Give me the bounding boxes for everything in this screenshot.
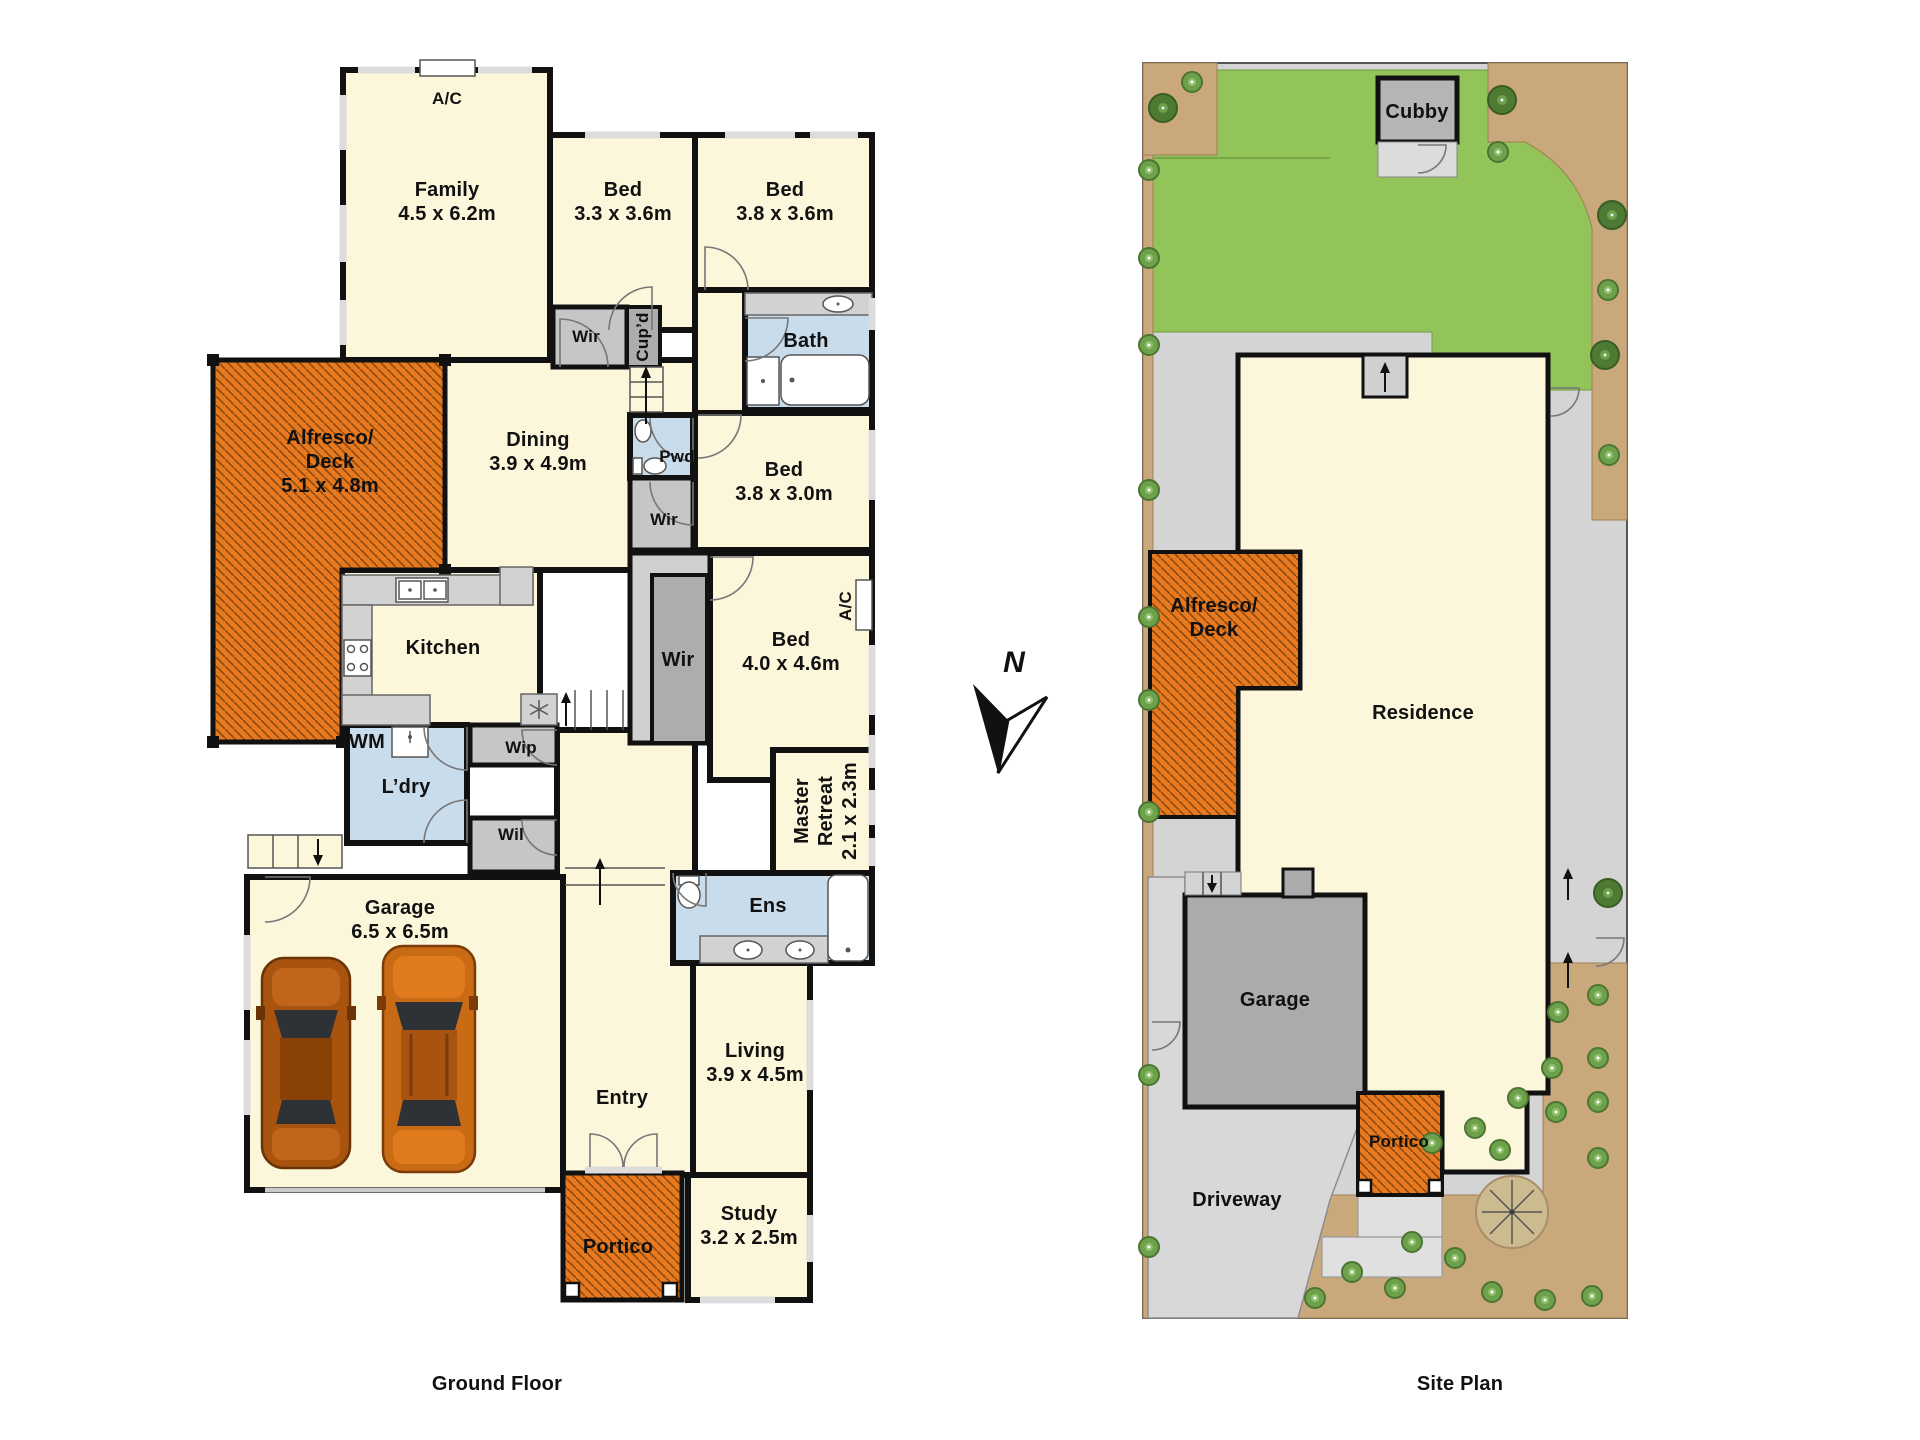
label-site-garage: Garage (1240, 988, 1310, 1012)
caption-ground-floor: Ground Floor (432, 1372, 562, 1396)
label-bed1: Bed3.3 x 3.6m (574, 178, 672, 226)
caption-site-plan: Site Plan (1417, 1372, 1503, 1396)
label-ens: Ens (749, 894, 786, 918)
label-dining: Dining3.9 x 4.9m (489, 428, 587, 476)
label-cupd: Cup’d (633, 312, 653, 361)
label-wm: WM (349, 730, 385, 754)
stove-icon (344, 640, 371, 676)
label-living: Living3.9 x 4.5m (706, 1039, 804, 1087)
label-bed4: Bed4.0 x 4.6m (742, 628, 840, 676)
laundry-fixtures (392, 727, 428, 757)
label-master-retreat: MasterRetreat2.1 x 2.3m (790, 762, 862, 860)
label-ac-bed4: A/C (836, 591, 856, 621)
portico-post (1358, 1180, 1371, 1193)
label-site-portico: Portico (1369, 1132, 1429, 1152)
label-entry: Entry (596, 1086, 648, 1110)
north-compass-icon (973, 684, 1047, 773)
plan-graphics (0, 0, 1920, 1440)
ac-unit-icon (420, 60, 475, 76)
label-bed2: Bed3.8 x 3.6m (736, 178, 834, 226)
portico-post (1429, 1180, 1442, 1193)
walkway (1358, 1195, 1442, 1237)
label-residence: Residence (1372, 701, 1474, 725)
label-alfresco: Alfresco/Deck5.1 x 4.8m (281, 426, 379, 498)
site-plan (1139, 63, 1627, 1318)
label-wir-master: Wir (662, 648, 695, 672)
site-garage-bump (1283, 869, 1313, 897)
label-wir-small: Wir (572, 327, 600, 347)
label-bed3: Bed3.8 x 3.0m (735, 458, 833, 506)
label-bath: Bath (783, 329, 828, 353)
label-driveway: Driveway (1192, 1188, 1281, 1212)
walkway (1322, 1237, 1442, 1277)
ground-floor-plan (207, 60, 872, 1300)
floorplan-canvas: A/C Family4.5 x 6.2m Bed3.3 x 3.6m Bed3.… (0, 0, 1920, 1440)
label-wip: Wip (505, 738, 537, 758)
car-icon (377, 946, 478, 1172)
label-ac-family: A/C (432, 89, 462, 109)
label-garage: Garage6.5 x 6.5m (351, 896, 449, 944)
label-study: Study3.2 x 2.5m (700, 1202, 798, 1250)
label-pwd: Pwd (659, 447, 695, 467)
label-site-alfresco: Alfresco/Deck (1170, 594, 1257, 642)
label-family: Family4.5 x 6.2m (398, 178, 496, 226)
label-cubby: Cubby (1385, 100, 1448, 124)
label-kitchen: Kitchen (406, 636, 481, 660)
toilet-icon (633, 458, 642, 474)
label-wil: Wil (498, 825, 524, 845)
bed1-room (550, 135, 695, 330)
label-ldry: L’dry (382, 775, 431, 799)
label-wir-mid: Wir (650, 510, 678, 530)
car-icon (256, 958, 356, 1168)
compass-north-label: N (1003, 645, 1025, 681)
label-portico: Portico (583, 1235, 653, 1259)
basin-icon (635, 420, 651, 442)
ac-unit-icon (856, 580, 872, 630)
